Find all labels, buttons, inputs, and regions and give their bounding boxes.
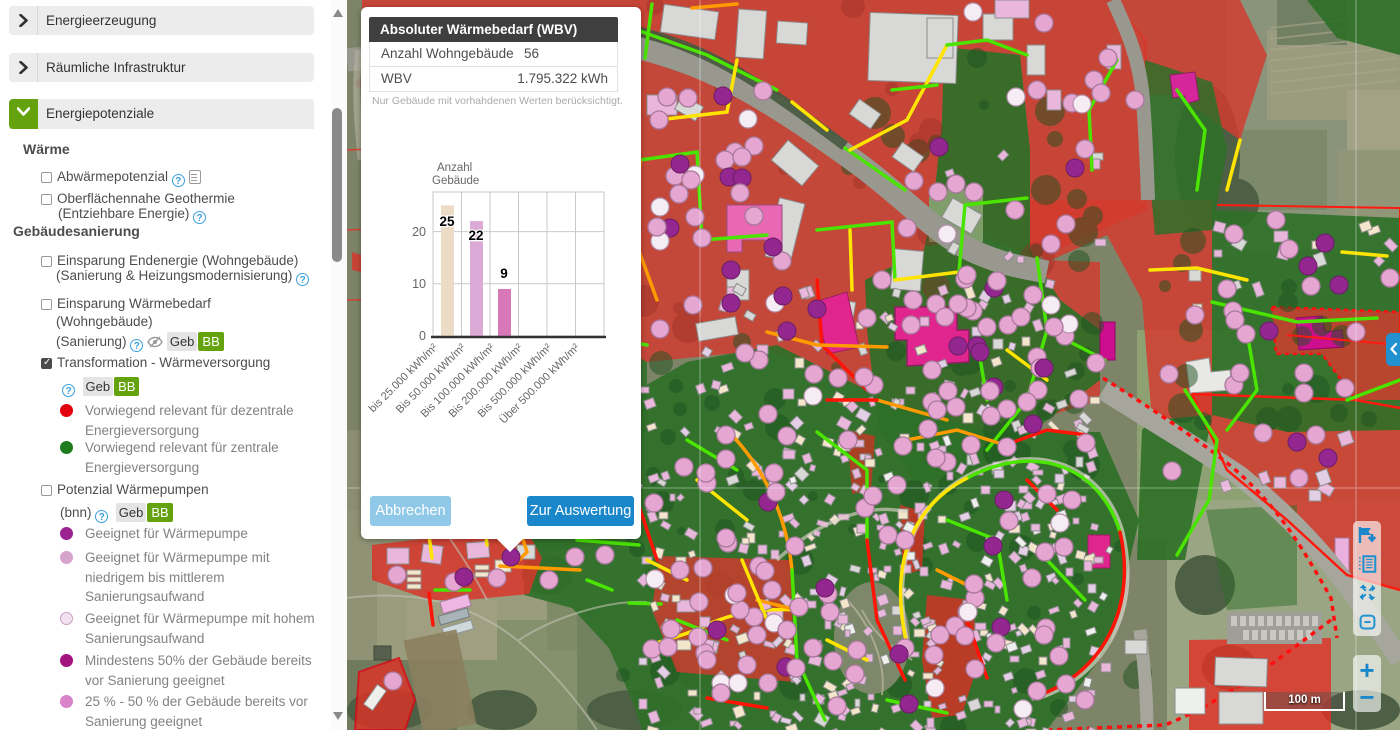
svg-text:0: 0 — [419, 329, 426, 343]
svg-text:Anzahl: Anzahl — [437, 162, 472, 174]
svg-text:Gebäude: Gebäude — [432, 175, 479, 187]
svg-text:22: 22 — [468, 228, 483, 243]
svg-text:9: 9 — [500, 266, 508, 281]
svg-text:25: 25 — [439, 214, 455, 229]
svg-text:20: 20 — [412, 225, 426, 239]
svg-text:10: 10 — [412, 277, 426, 291]
